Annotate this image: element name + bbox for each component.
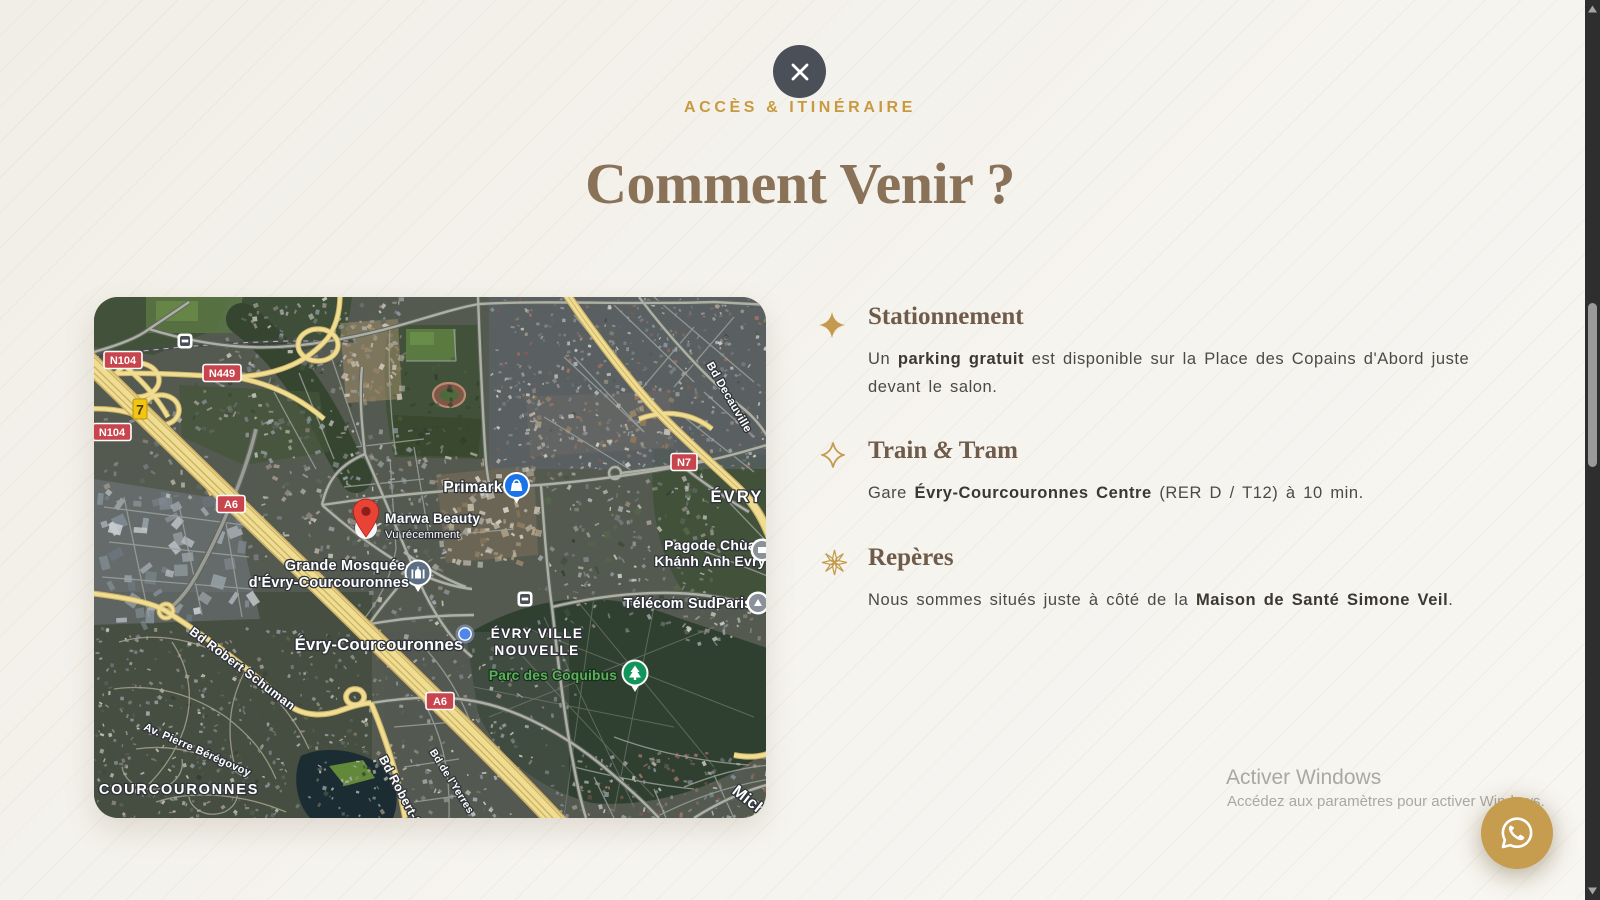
svg-text:N7: N7: [677, 457, 691, 469]
svg-text:Télécom SudParis: Télécom SudParis: [624, 596, 753, 612]
svg-text:A6: A6: [224, 499, 238, 511]
svg-text:NOUVELLE: NOUVELLE: [494, 643, 579, 658]
svg-text:ÉVRY VILLE: ÉVRY VILLE: [491, 626, 584, 641]
svg-text:7: 7: [136, 402, 144, 418]
svg-text:Marwa Beauty: Marwa Beauty: [385, 511, 480, 526]
svg-text:N104: N104: [110, 355, 137, 367]
svg-text:COURCOURONNES: COURCOURONNES: [99, 782, 259, 798]
svg-text:d'Évry-Courcouronnes: d'Évry-Courcouronnes: [249, 574, 410, 591]
svg-text:Évry-Courcouronnes: Évry-Courcouronnes: [295, 635, 464, 654]
svg-text:N449: N449: [209, 368, 235, 380]
svg-text:Pagode Chùa: Pagode Chùa: [664, 537, 756, 553]
svg-text:Grande Mosquée: Grande Mosquée: [285, 558, 405, 574]
svg-text:Parc des Coquibus: Parc des Coquibus: [489, 668, 617, 683]
svg-text:ÉVRY: ÉVRY: [710, 487, 763, 506]
svg-text:Vu récemment: Vu récemment: [385, 529, 460, 541]
svg-text:Khánh Anh Evry: Khánh Anh Evry: [654, 553, 765, 569]
svg-text:N104: N104: [99, 427, 126, 439]
svg-text:A6: A6: [433, 696, 447, 708]
svg-text:Primark: Primark: [443, 479, 502, 496]
